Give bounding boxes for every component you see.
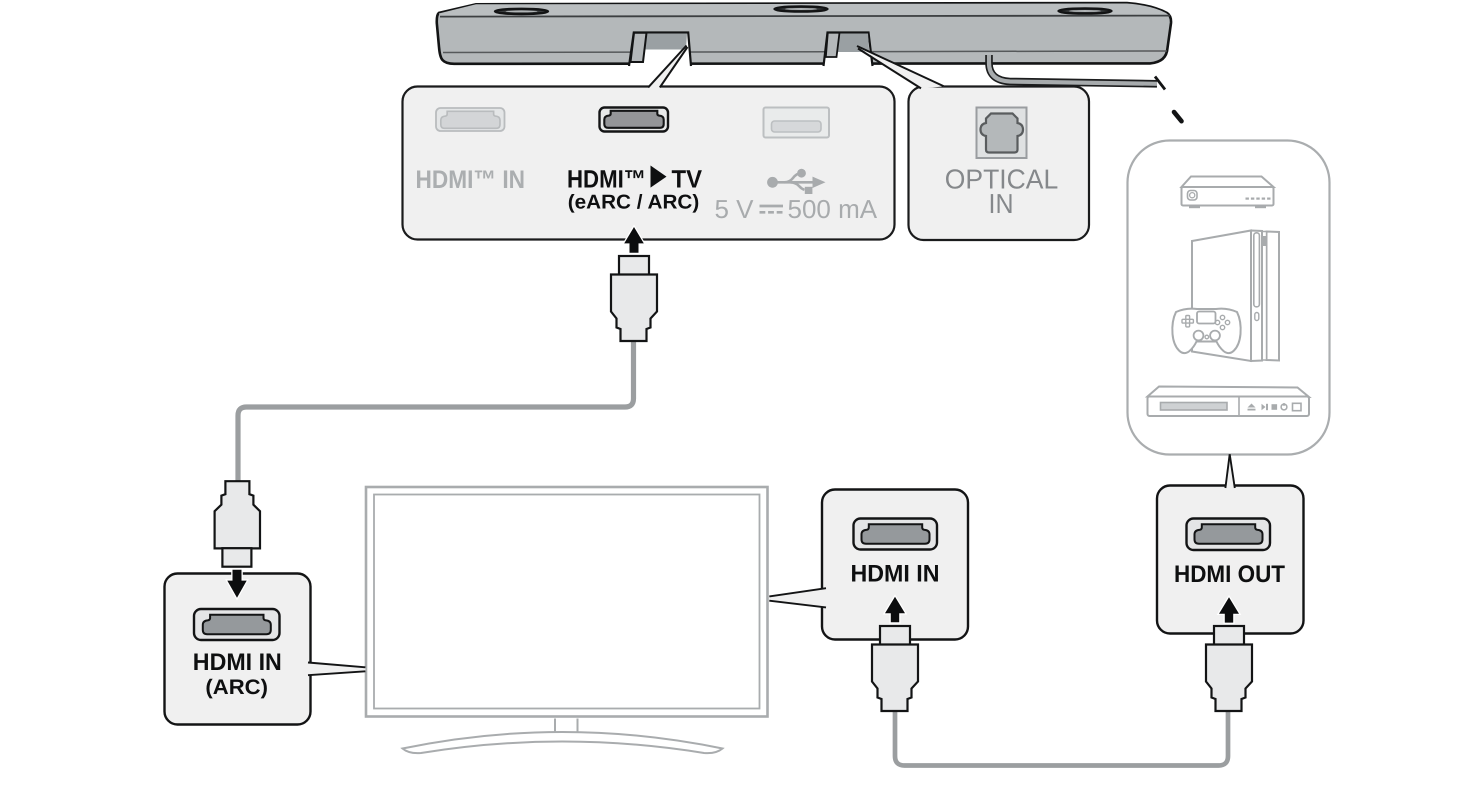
svg-text:HDMI OUT: HDMI OUT (1174, 561, 1285, 588)
svg-text:IN: IN (989, 188, 1014, 219)
svg-text:HDMI™: HDMI™ (567, 166, 646, 194)
svg-text:500 mA: 500 mA (788, 194, 878, 224)
svg-text:HDMI™ IN: HDMI™ IN (416, 166, 526, 194)
svg-text:(eARC / ARC): (eARC / ARC) (568, 192, 700, 214)
svg-text:HDMI IN: HDMI IN (851, 560, 940, 587)
svg-text:5 V: 5 V (714, 194, 754, 224)
svg-text:(ARC): (ARC) (205, 676, 268, 699)
svg-text:TV: TV (672, 166, 703, 194)
svg-text:HDMI IN: HDMI IN (193, 649, 282, 676)
